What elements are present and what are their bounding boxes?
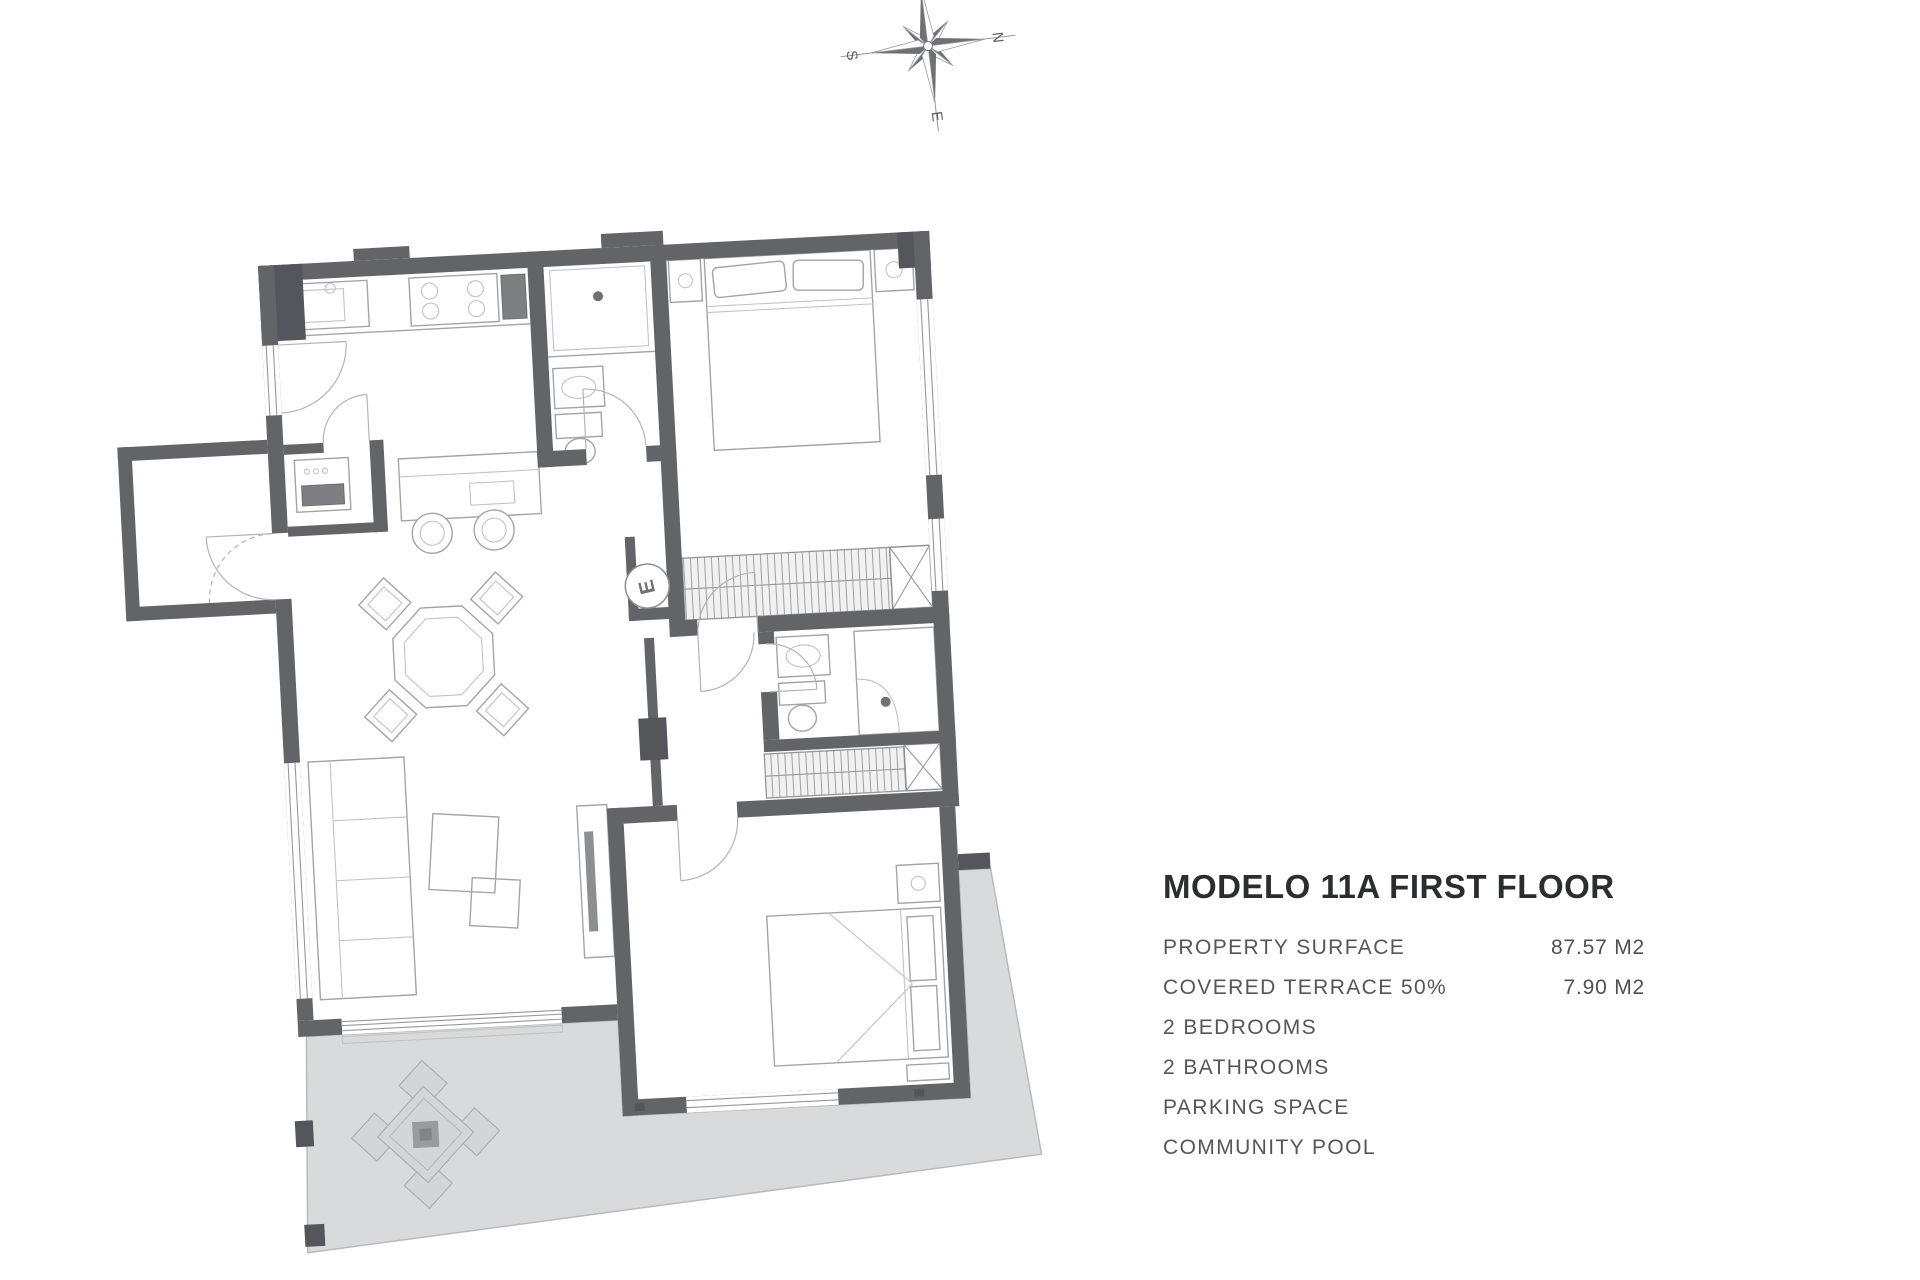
nightstand <box>896 863 940 903</box>
floor-plan: E <box>107 213 1044 1260</box>
spec-row-pool: COMMUNITY POOL <box>1163 1128 1645 1168</box>
shower <box>854 627 939 735</box>
spec-label: COMMUNITY POOL <box>1163 1128 1376 1168</box>
coffee-table <box>429 814 499 893</box>
window <box>262 345 282 416</box>
kitchen <box>275 272 543 561</box>
utility-closet <box>294 458 351 513</box>
spec-value: 7.90 M2 <box>1564 968 1645 1008</box>
dining-chair <box>358 576 413 631</box>
nightstand <box>907 1063 950 1081</box>
bathroom-sink <box>553 366 605 409</box>
spec-row-property-surface: PROPERTY SURFACE 87.57 M2 <box>1163 928 1645 968</box>
wardrobes <box>682 545 942 802</box>
spec-label: COVERED TERRACE 50% <box>1163 968 1447 1008</box>
living-room <box>308 747 616 1000</box>
bedroom-2 <box>764 863 949 1088</box>
compass-east-label: E <box>928 110 946 122</box>
page-title: MODELO 11A FIRST FLOOR <box>1163 867 1645 907</box>
sofa <box>308 757 416 1000</box>
spec-label: 2 BEDROOMS <box>1163 1008 1317 1048</box>
toilet <box>779 681 826 705</box>
dining-table <box>391 604 496 709</box>
bathroom-1 <box>544 265 661 465</box>
bathroom-sink <box>776 635 830 678</box>
bedroom-1 <box>668 248 922 453</box>
spec-label: PARKING SPACE <box>1163 1088 1350 1128</box>
dining-chair <box>469 571 524 626</box>
window <box>284 762 312 999</box>
dining-chair <box>475 682 530 737</box>
spec-value: 87.57 M2 <box>1551 928 1645 968</box>
bed <box>704 250 880 450</box>
dining-chair <box>363 688 418 743</box>
compass-rose-icon: N E S W <box>830 0 1026 142</box>
toilet <box>555 412 602 438</box>
dining-area <box>358 571 530 743</box>
spec-label: 2 BATHROOMS <box>1163 1048 1330 1088</box>
stove <box>409 274 499 327</box>
spec-row-parking: PARKING SPACE <box>1163 1088 1645 1128</box>
entrance-porch <box>117 440 276 622</box>
spec-row-covered-terrace: COVERED TERRACE 50% 7.90 M2 <box>1163 968 1645 1008</box>
spec-list: PROPERTY SURFACE 87.57 M2 COVERED TERRAC… <box>1163 928 1645 1168</box>
shower <box>550 266 649 351</box>
fridge <box>501 274 527 319</box>
bathroom-2 <box>776 627 939 739</box>
compass-north-label: N <box>988 31 1006 44</box>
spec-row-bedrooms: 2 BEDROOMS <box>1163 1008 1645 1048</box>
spec-row-bathrooms: 2 BATHROOMS <box>1163 1048 1645 1088</box>
spec-label: PROPERTY SURFACE <box>1163 928 1405 968</box>
nightstand <box>668 259 702 303</box>
floor-plan-page: N E S W <box>0 0 1920 1280</box>
info-panel: MODELO 11A FIRST FLOOR PROPERTY SURFACE … <box>1163 867 1645 1168</box>
window <box>917 299 942 476</box>
compass-south-label: S <box>843 49 861 61</box>
